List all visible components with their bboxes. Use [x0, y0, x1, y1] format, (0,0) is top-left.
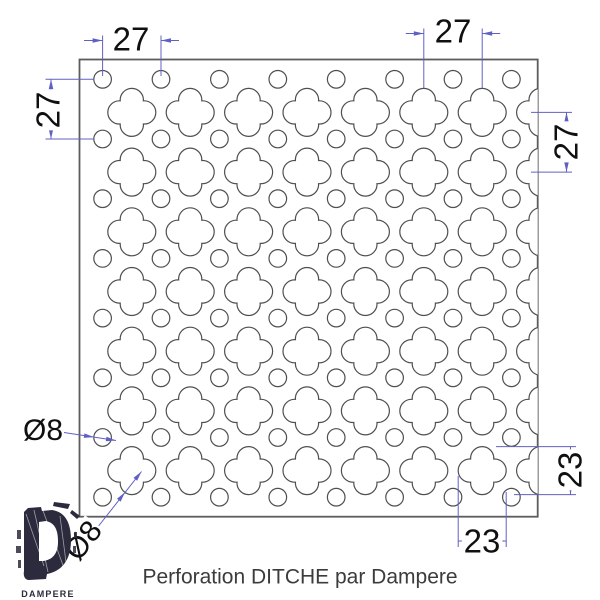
dim-clover-width-label: 23 [462, 525, 503, 558]
perforation-panel-drawing [0, 0, 600, 600]
dim-clover-pitch-vertical-label: 27 [550, 122, 583, 163]
dampere-logo: DAMPERE [14, 502, 82, 599]
dim-circle-diameter-label: Ø8 [22, 416, 64, 446]
dampere-logo-mark [14, 502, 82, 586]
dim-clover-height-label: 23 [554, 450, 587, 491]
dampere-logo-text: DAMPERE [21, 589, 74, 599]
dim-circle-pitch-horizontal-label: 27 [111, 23, 152, 56]
dim-clover-pitch-horizontal-label: 27 [433, 15, 474, 48]
dim-circle-pitch-vertical-label: 27 [32, 90, 65, 131]
drawing-caption: Perforation DITCHE par Dampere [142, 567, 457, 588]
drawing-page: 27 27 27 27 23 23 Ø8 Ø8 Perforation DITC… [0, 0, 600, 600]
